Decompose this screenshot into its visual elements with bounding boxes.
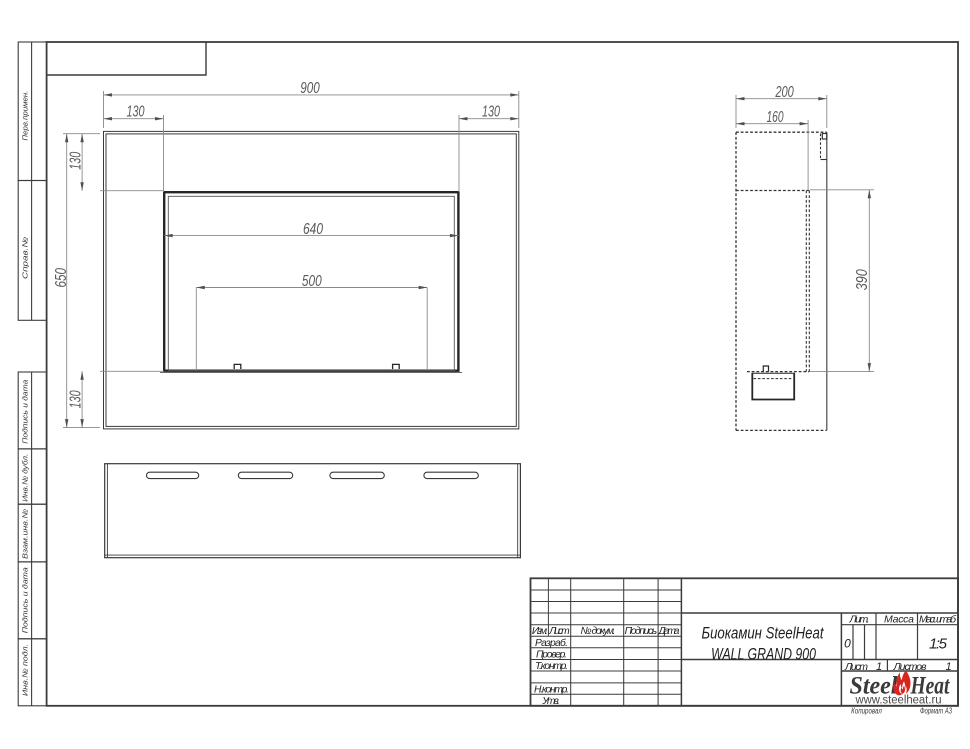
svg-text:130: 130: [127, 104, 145, 121]
svg-text:Провер.: Провер.: [536, 650, 567, 661]
svg-text:WALL GRAND 900: WALL GRAND 900: [711, 646, 817, 664]
svg-text:Справ.№: Справ.№: [20, 237, 29, 279]
svg-text:160: 160: [767, 109, 784, 126]
svg-text:Взам.инв.№: Взам.инв.№: [20, 509, 29, 559]
svg-text:Масса: Масса: [884, 614, 914, 626]
svg-text:900: 900: [300, 80, 320, 97]
svg-text:0: 0: [844, 637, 851, 651]
svg-text:Биокамин SteelHeat: Биокамин SteelHeat: [702, 624, 825, 643]
svg-text:Формат А3: Формат А3: [920, 705, 953, 716]
svg-text:Лит.: Лит.: [849, 614, 870, 626]
svg-text:Изм.: Изм.: [532, 626, 548, 637]
svg-text:1: 1: [876, 661, 882, 673]
svg-text:Перв.примен.: Перв.примен.: [20, 91, 29, 141]
svg-text:130: 130: [67, 152, 84, 170]
svg-text:Подпись и дата: Подпись и дата: [20, 567, 29, 633]
svg-text:1:5: 1:5: [929, 636, 948, 653]
svg-text:Подпись: Подпись: [625, 626, 658, 637]
svg-text:130: 130: [482, 104, 500, 121]
svg-text:Лист: Лист: [548, 626, 570, 637]
svg-text:Лист: Лист: [844, 661, 868, 673]
svg-text:390: 390: [854, 269, 871, 290]
svg-text:Дата: Дата: [658, 626, 680, 637]
svg-text:640: 640: [303, 221, 323, 238]
svg-text:Н.контр.: Н.контр.: [534, 684, 569, 695]
svg-text:650: 650: [53, 268, 70, 288]
svg-text:130: 130: [67, 390, 84, 408]
svg-text:Инв.№ подл.: Инв.№ подл.: [20, 644, 29, 696]
svg-text:500: 500: [302, 273, 322, 290]
svg-text:Т.контр.: Т.контр.: [535, 661, 568, 672]
svg-text:Подпись и дата: Подпись и дата: [20, 380, 29, 444]
svg-text:№ докум.: № докум.: [581, 626, 616, 637]
svg-text:Разраб.: Разраб.: [535, 637, 568, 649]
svg-text:Копировал: Копировал: [851, 705, 882, 715]
svg-text:200: 200: [775, 84, 794, 101]
svg-text:Масштаб: Масштаб: [919, 614, 957, 626]
svg-text:Утв.: Утв.: [541, 696, 560, 707]
svg-text:Инв.№ дубл.: Инв.№ дубл.: [20, 454, 29, 502]
